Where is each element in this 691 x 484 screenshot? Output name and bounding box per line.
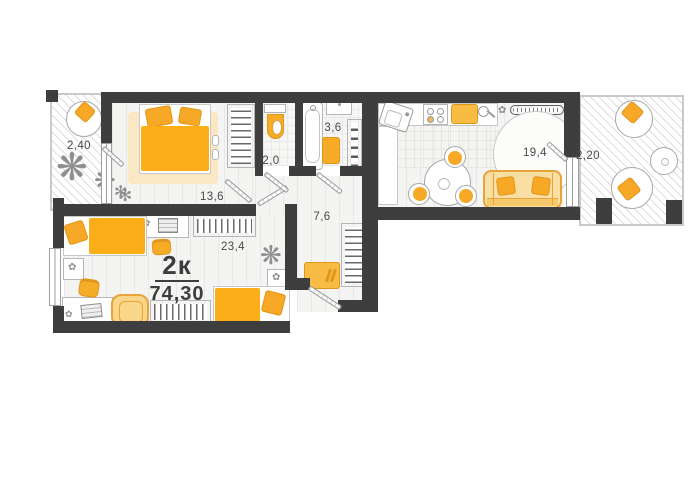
bedroom-wardrobe: [227, 104, 255, 168]
wall-top: [101, 92, 580, 103]
flower-icon: ✿: [68, 263, 76, 273]
table-center: [438, 178, 450, 190]
window-living-left: [49, 248, 61, 306]
area-label-kitchen: 19,4: [514, 146, 556, 160]
burner: [437, 108, 444, 115]
wall-hallway-left: [285, 216, 297, 280]
sofa-armrest: [552, 173, 561, 205]
title-divider: [155, 280, 199, 282]
wall-wc-bath-bottom: [289, 166, 316, 176]
flower-icon: ✿: [65, 311, 73, 320]
wall-divider-stub: [285, 204, 297, 216]
laptop-icon: [80, 303, 102, 319]
wall-balcony-right-corner: [666, 200, 682, 224]
balcony-side-table: [650, 147, 678, 175]
sofa-backrest: [487, 198, 558, 206]
laptop-icon: [158, 218, 178, 233]
sofa: [483, 170, 562, 209]
bed-pillow: [178, 106, 202, 126]
sink-bowl: [383, 109, 403, 128]
toilet-bowl: [267, 114, 284, 139]
cutting-board: [451, 104, 478, 124]
area-label-wc: 2,0: [255, 154, 287, 168]
bed-blanket: [141, 126, 209, 171]
flower-icon: ✿: [498, 106, 506, 116]
sofa-armrest: [485, 173, 494, 205]
sofa-pillow: [496, 176, 516, 196]
area-label-living-room: 23,4: [211, 240, 255, 254]
desk-chair: [78, 278, 100, 299]
living-wardrobe-top: [193, 215, 256, 237]
wall-balcony-left-corner: [46, 90, 58, 102]
washing-machine: [322, 137, 340, 164]
toilet-tank: [264, 104, 286, 113]
burner: [427, 116, 434, 123]
bed-blanket: [215, 288, 260, 322]
wall-bath-bottom: [340, 166, 362, 176]
kitchen-counter-left: [378, 126, 398, 205]
slipper-icon: [212, 149, 219, 160]
burner: [427, 108, 434, 115]
wall-entry-bottom: [338, 300, 378, 312]
apartment-type-label: 2к: [149, 252, 205, 278]
wall-living-left-top: [53, 198, 64, 248]
armchair-seat: [119, 301, 143, 323]
area-label-bathroom: 3,6: [317, 121, 349, 135]
table-center: [661, 158, 669, 166]
bathtub-drain: [310, 105, 316, 111]
total-area-label: 74,30: [147, 284, 207, 304]
area-label-hallway: 7,6: [305, 210, 339, 224]
area-label-balcony-right: 2,20: [567, 149, 609, 163]
bed-blanket: [89, 218, 145, 254]
chair-seat: [413, 187, 427, 201]
burner: [437, 116, 444, 123]
flower-icon: ✿: [272, 273, 280, 283]
wall-kitchen-right: [564, 92, 580, 157]
chair-seat: [448, 151, 462, 165]
wall-balcony-bedroom: [101, 103, 112, 143]
wall-balcony-right-block: [596, 198, 612, 224]
wall-living-bottom: [53, 321, 290, 333]
window-kitchen-balcony: [566, 157, 579, 207]
stove: [423, 104, 448, 125]
wall-hallway-corner: [285, 278, 310, 290]
plant-icon: ✻: [114, 184, 127, 200]
wall-kitchen-bottom: [362, 207, 580, 220]
sink-faucet: [338, 103, 341, 106]
bathtub-basin: [305, 109, 320, 163]
sofa-pillow: [531, 176, 551, 196]
sink-faucet: [405, 112, 410, 117]
plant-icon: ❋: [56, 148, 88, 186]
floor-plan: ❋ ❋ ✻ ✻ ✿ ❋ ✿ ✿ ✿: [0, 0, 691, 484]
area-label-balcony-left: 2,40: [58, 139, 100, 153]
plant-icon: ❋: [260, 243, 282, 269]
wall-bedroom-living-divider: [55, 204, 256, 216]
slipper-icon: [212, 135, 219, 146]
toilet-seat: [272, 120, 282, 135]
bathroom-shelf: [347, 119, 362, 171]
chair-seat: [459, 189, 473, 203]
bathtub: [301, 102, 323, 170]
area-label-bedroom: 13,6: [192, 190, 232, 204]
